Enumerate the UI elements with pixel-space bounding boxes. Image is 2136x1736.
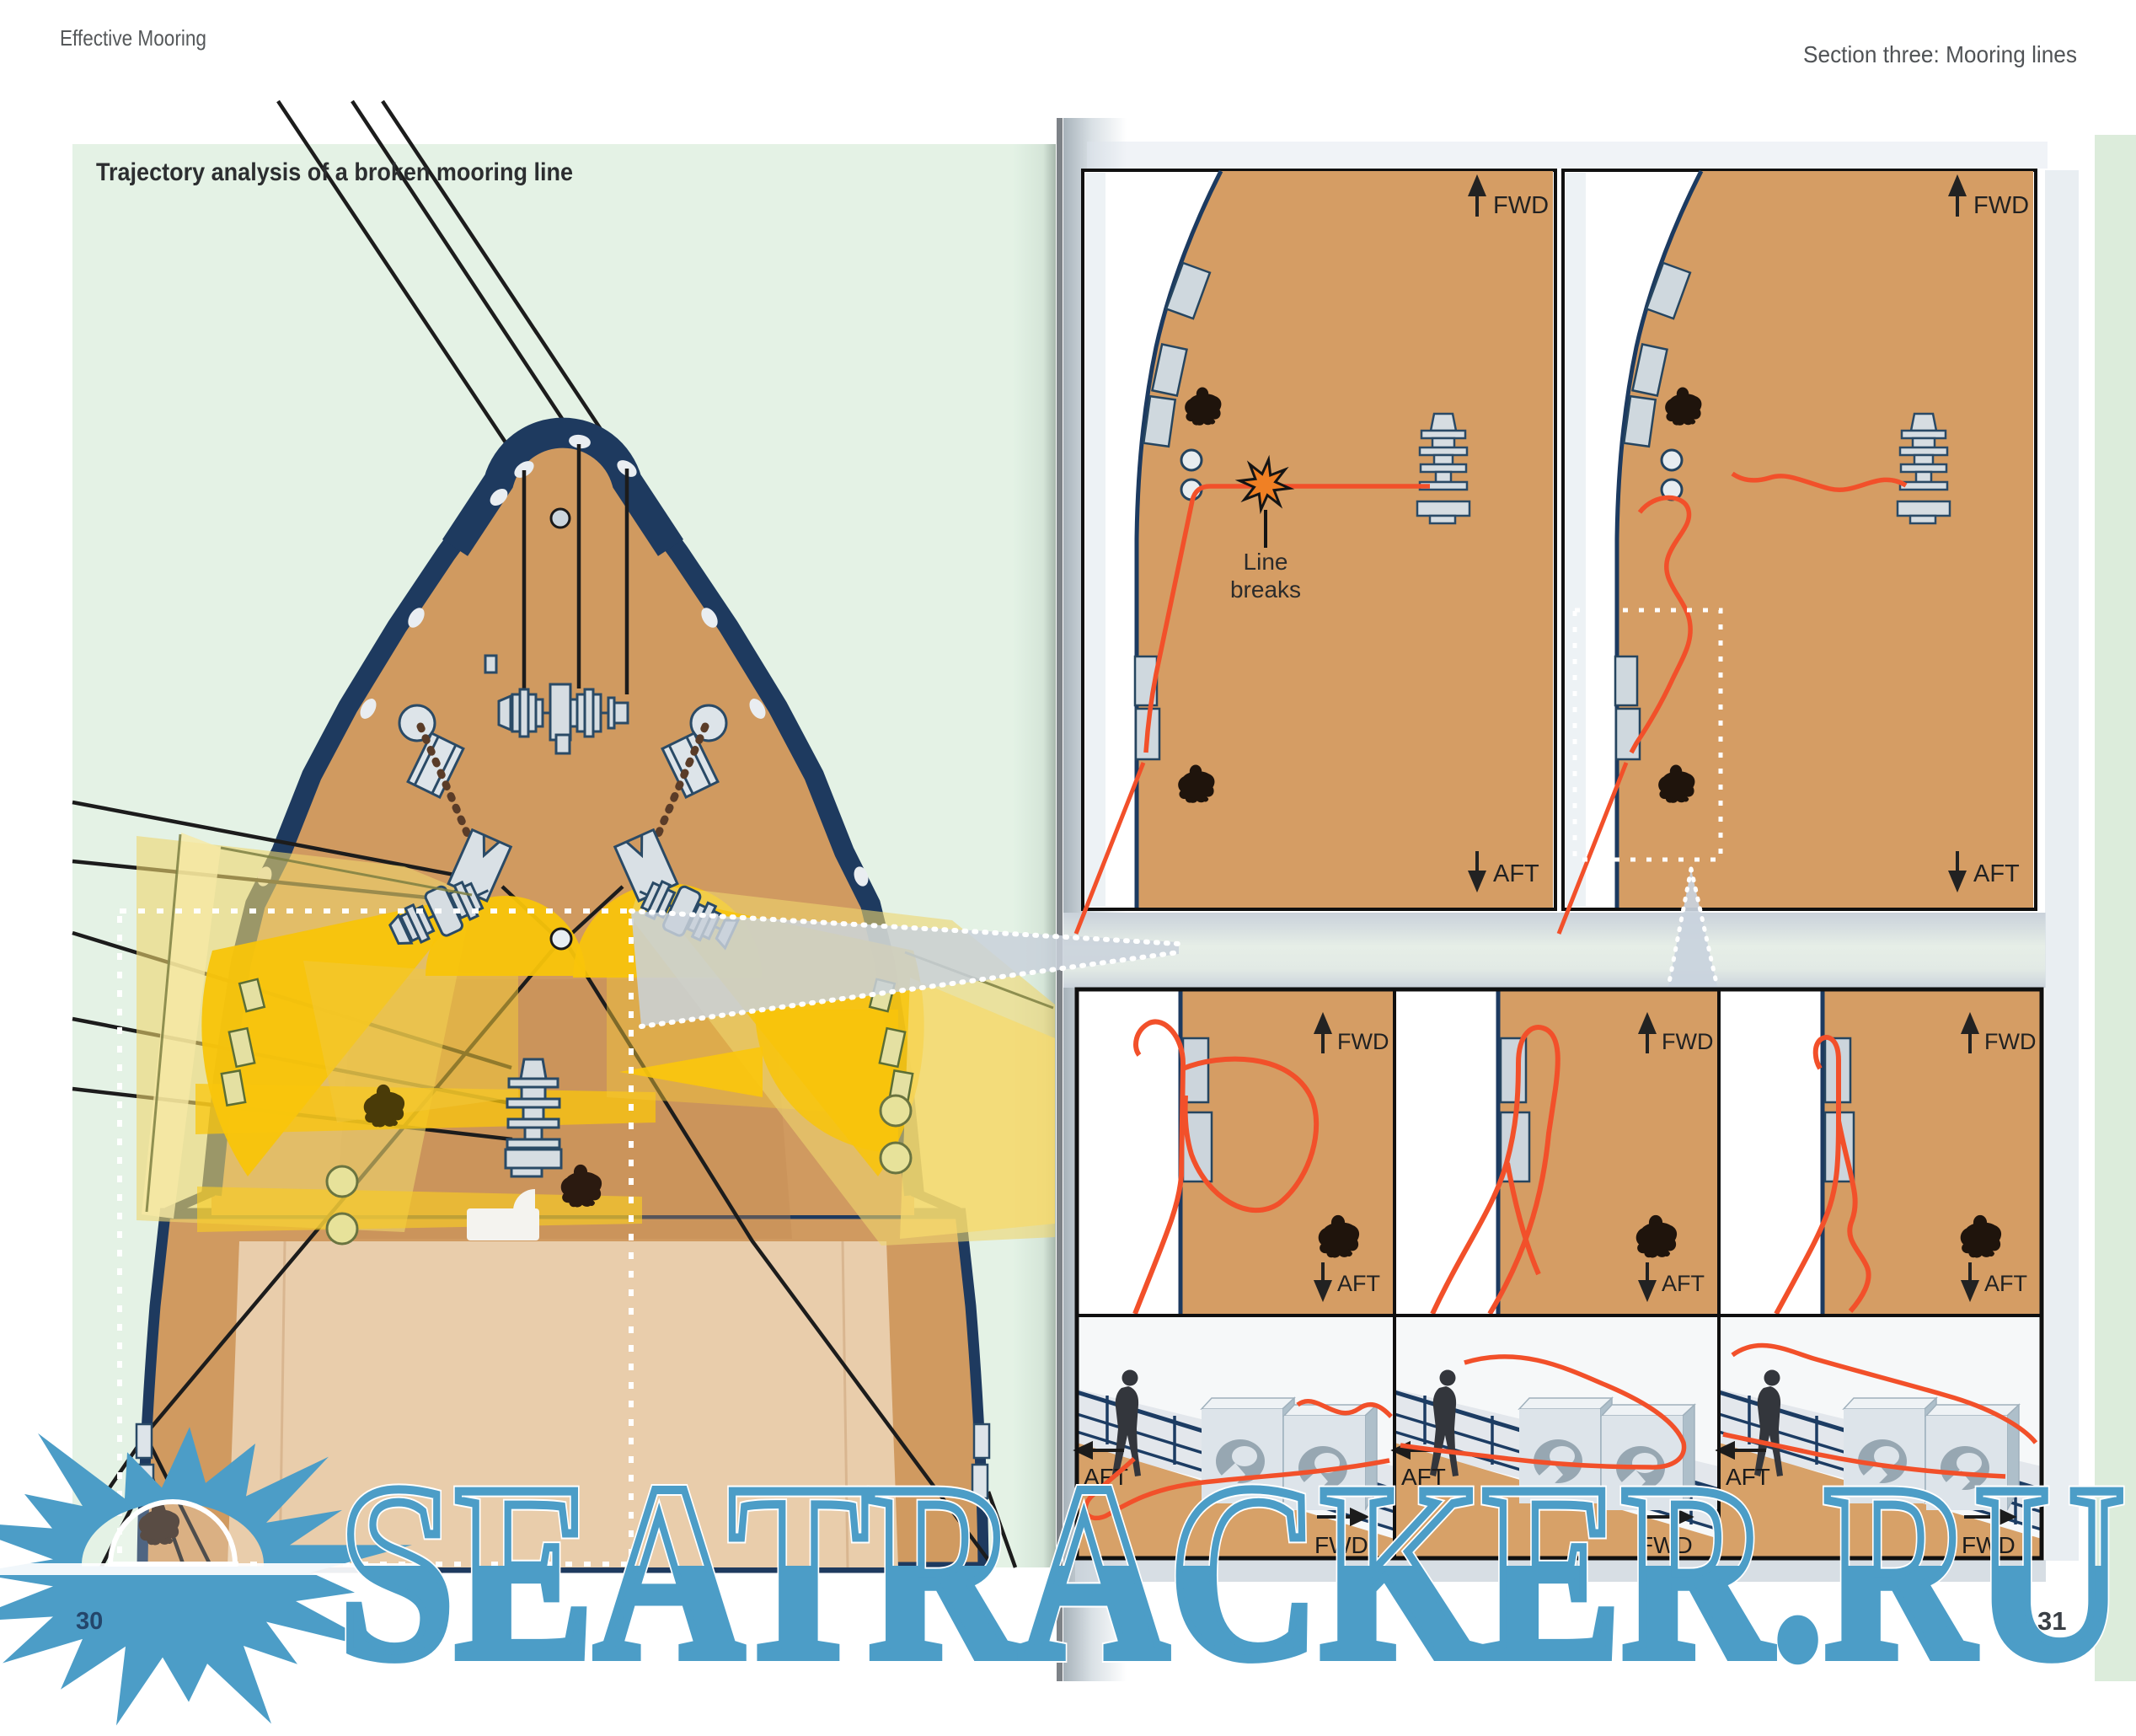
svg-text:AFT: AFT [1984,1271,2027,1296]
svg-text:AFT: AFT [1337,1271,1380,1296]
svg-text:Effective Mooring: Effective Mooring [60,25,206,51]
svg-text:FWD: FWD [1337,1029,1389,1054]
svg-text:FWD: FWD [1662,1029,1713,1054]
svg-text:30: 30 [76,1608,103,1635]
svg-text:31: 31 [2037,1606,2066,1636]
svg-text:FWD: FWD [1973,192,2029,219]
svg-text:breaks: breaks [1230,576,1301,603]
svg-text:AFT: AFT [1493,860,1539,887]
svg-text:Section three: Mooring lines: Section three: Mooring lines [1803,41,2077,67]
svg-text:AFT: AFT [1973,860,2020,887]
svg-text:FWD: FWD [1493,192,1549,219]
svg-text:AFT: AFT [1662,1271,1705,1296]
svg-text:Trajectory analysis of a broke: Trajectory analysis of a broken mooring … [96,158,573,186]
svg-text:FWD: FWD [1984,1029,2036,1054]
svg-text:Line: Line [1244,549,1288,575]
